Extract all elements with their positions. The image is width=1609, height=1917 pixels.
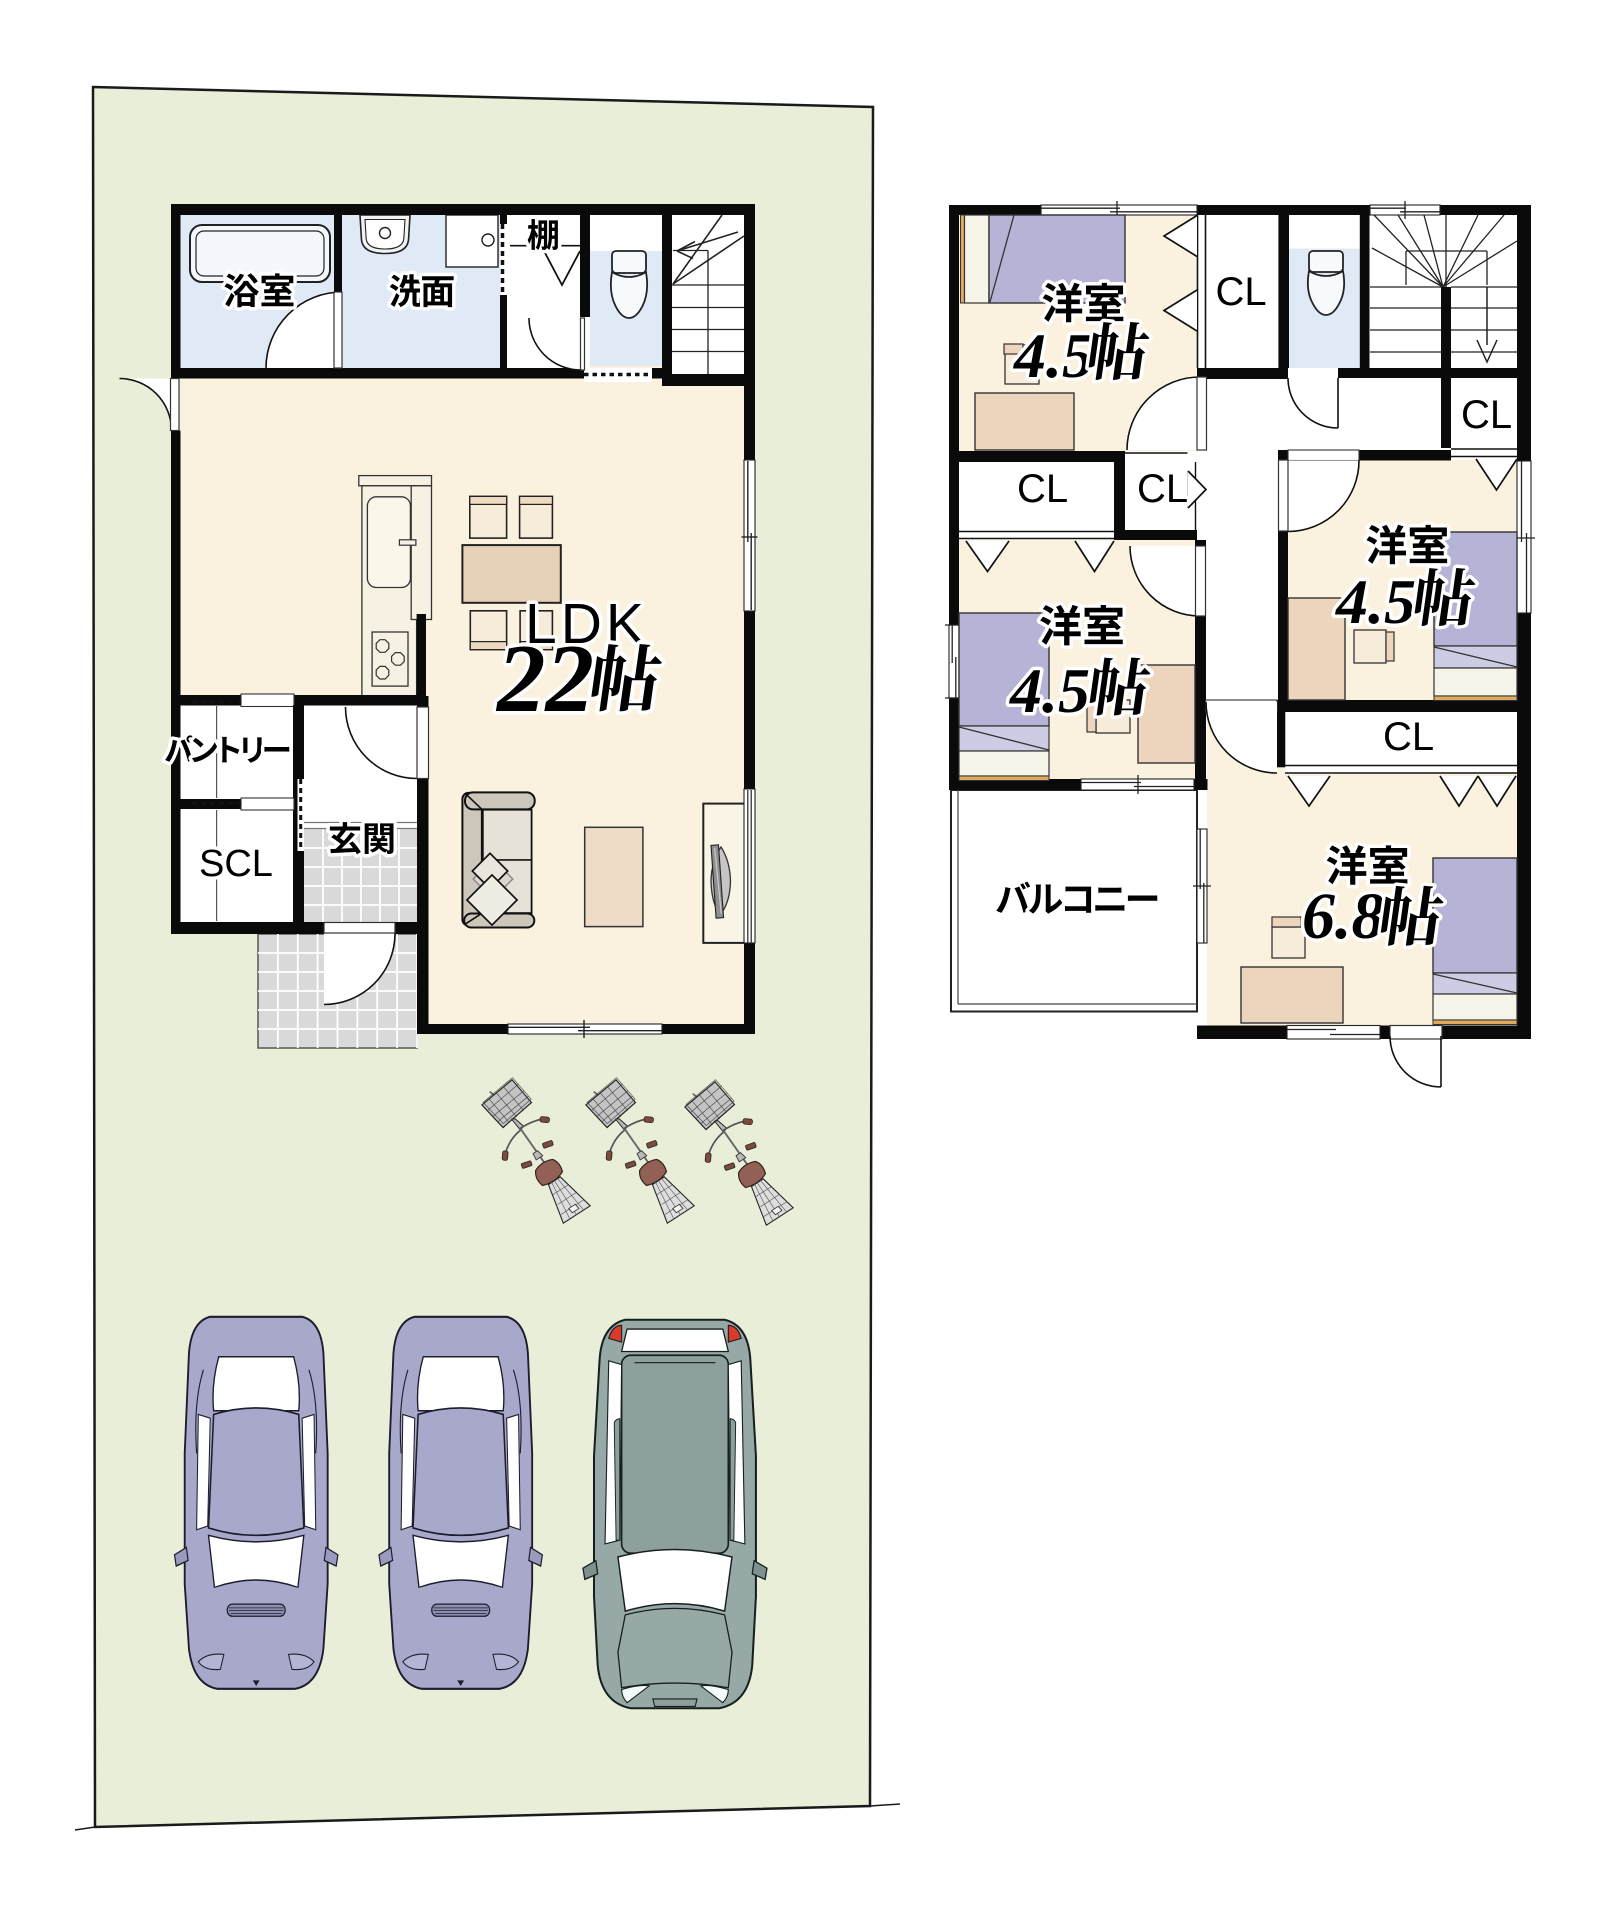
svg-text:CL: CL (1216, 270, 1267, 314)
svg-text:CL: CL (1137, 467, 1188, 511)
svg-text:CL: CL (1461, 393, 1512, 437)
svg-text:4.5: 4.5 (1009, 655, 1090, 726)
svg-text:4.5: 4.5 (1335, 566, 1416, 637)
svg-text:6.8: 6.8 (1302, 880, 1385, 953)
svg-text:22: 22 (495, 625, 594, 732)
svg-text:CL: CL (1017, 467, 1068, 511)
svg-text:SCL: SCL (199, 843, 273, 885)
svg-text:4.5: 4.5 (1013, 320, 1094, 391)
svg-text:CL: CL (1383, 715, 1434, 759)
